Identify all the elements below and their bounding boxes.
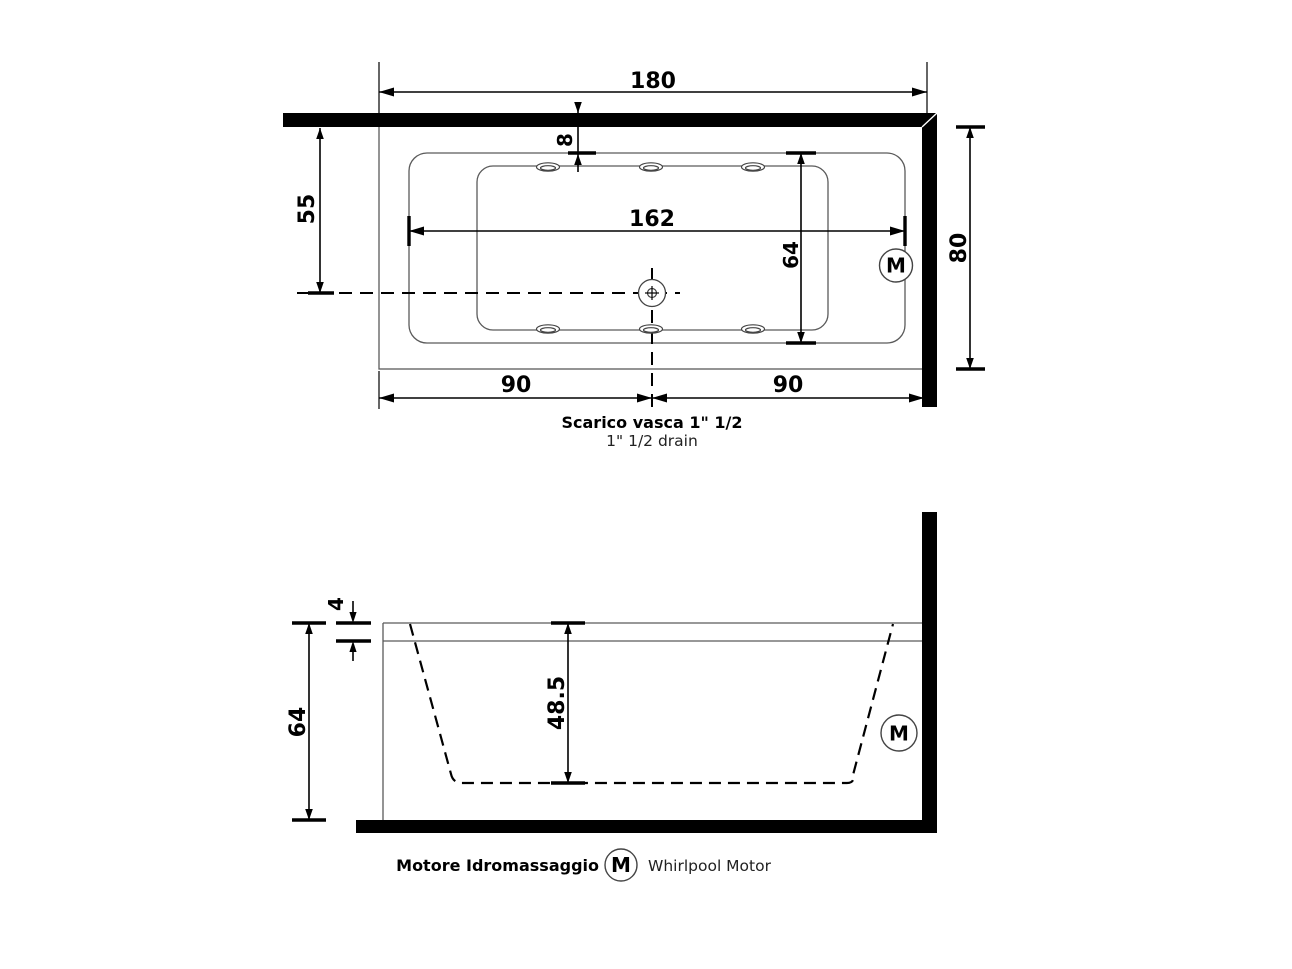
jet-icon	[640, 325, 663, 333]
legend: Motore Idromassaggio M Whirlpool Motor	[396, 849, 771, 881]
jet-icon	[742, 325, 765, 333]
legend-motor-english: Whirlpool Motor	[648, 857, 772, 875]
drain-caption-italian: Scarico vasca 1" 1/2	[562, 413, 743, 432]
dim-total-depth: 80	[947, 127, 985, 369]
bathtub-drawing: M 180 8 55	[0, 0, 1292, 969]
dim-drain-left-label: 90	[501, 373, 532, 398]
motor-letter-side: M	[889, 722, 909, 746]
dim-wall-to-center-label: 55	[295, 194, 320, 225]
wall-right-plan	[922, 113, 937, 407]
dim-inner-depth-label: 48.5	[545, 676, 570, 730]
jet-icon	[537, 163, 560, 171]
technical-drawing-page: M 180 8 55	[0, 0, 1292, 969]
dim-rim-thickness: 4	[324, 597, 371, 661]
jet-icons-bottom	[537, 325, 765, 333]
side-view: M 4 64 48.5	[286, 512, 937, 833]
motor-badge-plan: M	[880, 249, 913, 282]
floor	[356, 820, 937, 833]
dim-inner-depth: 48.5	[545, 623, 585, 783]
motor-badge-side: M	[881, 715, 917, 751]
dim-jet-offset: 8	[553, 102, 596, 172]
dim-basin-width-label: 64	[779, 241, 803, 269]
dim-total-width-label: 180	[630, 69, 676, 94]
dim-rim-thickness-label: 4	[324, 597, 348, 611]
wall-top	[283, 113, 937, 127]
dim-total-height: 64	[286, 623, 326, 820]
drain-icon	[639, 280, 666, 307]
dim-basin-length: 162	[409, 207, 905, 246]
drain-caption-english: 1" 1/2 drain	[606, 432, 698, 450]
jet-icon	[742, 163, 765, 171]
dim-wall-to-center: 55	[295, 128, 334, 293]
dim-total-width: 180	[379, 62, 927, 113]
dim-basin-length-label: 162	[629, 207, 675, 232]
jet-icon	[640, 163, 663, 171]
dim-drain-right-label: 90	[773, 373, 804, 398]
plan-view: M 180 8 55	[283, 62, 985, 450]
legend-motor-italian: Motore Idromassaggio	[396, 856, 599, 875]
dim-total-depth-label: 80	[947, 233, 972, 264]
dim-jet-offset-label: 8	[553, 133, 577, 147]
dim-basin-width: 64	[779, 153, 816, 343]
tub-rim-outline	[409, 153, 905, 343]
wall-right-side	[922, 512, 937, 833]
basin-section-profile	[410, 624, 893, 783]
jet-icon	[537, 325, 560, 333]
legend-motor-symbol: M	[611, 853, 631, 877]
motor-letter-plan: M	[886, 254, 906, 278]
dim-total-height-label: 64	[286, 707, 311, 738]
jet-icons-top	[537, 163, 765, 171]
